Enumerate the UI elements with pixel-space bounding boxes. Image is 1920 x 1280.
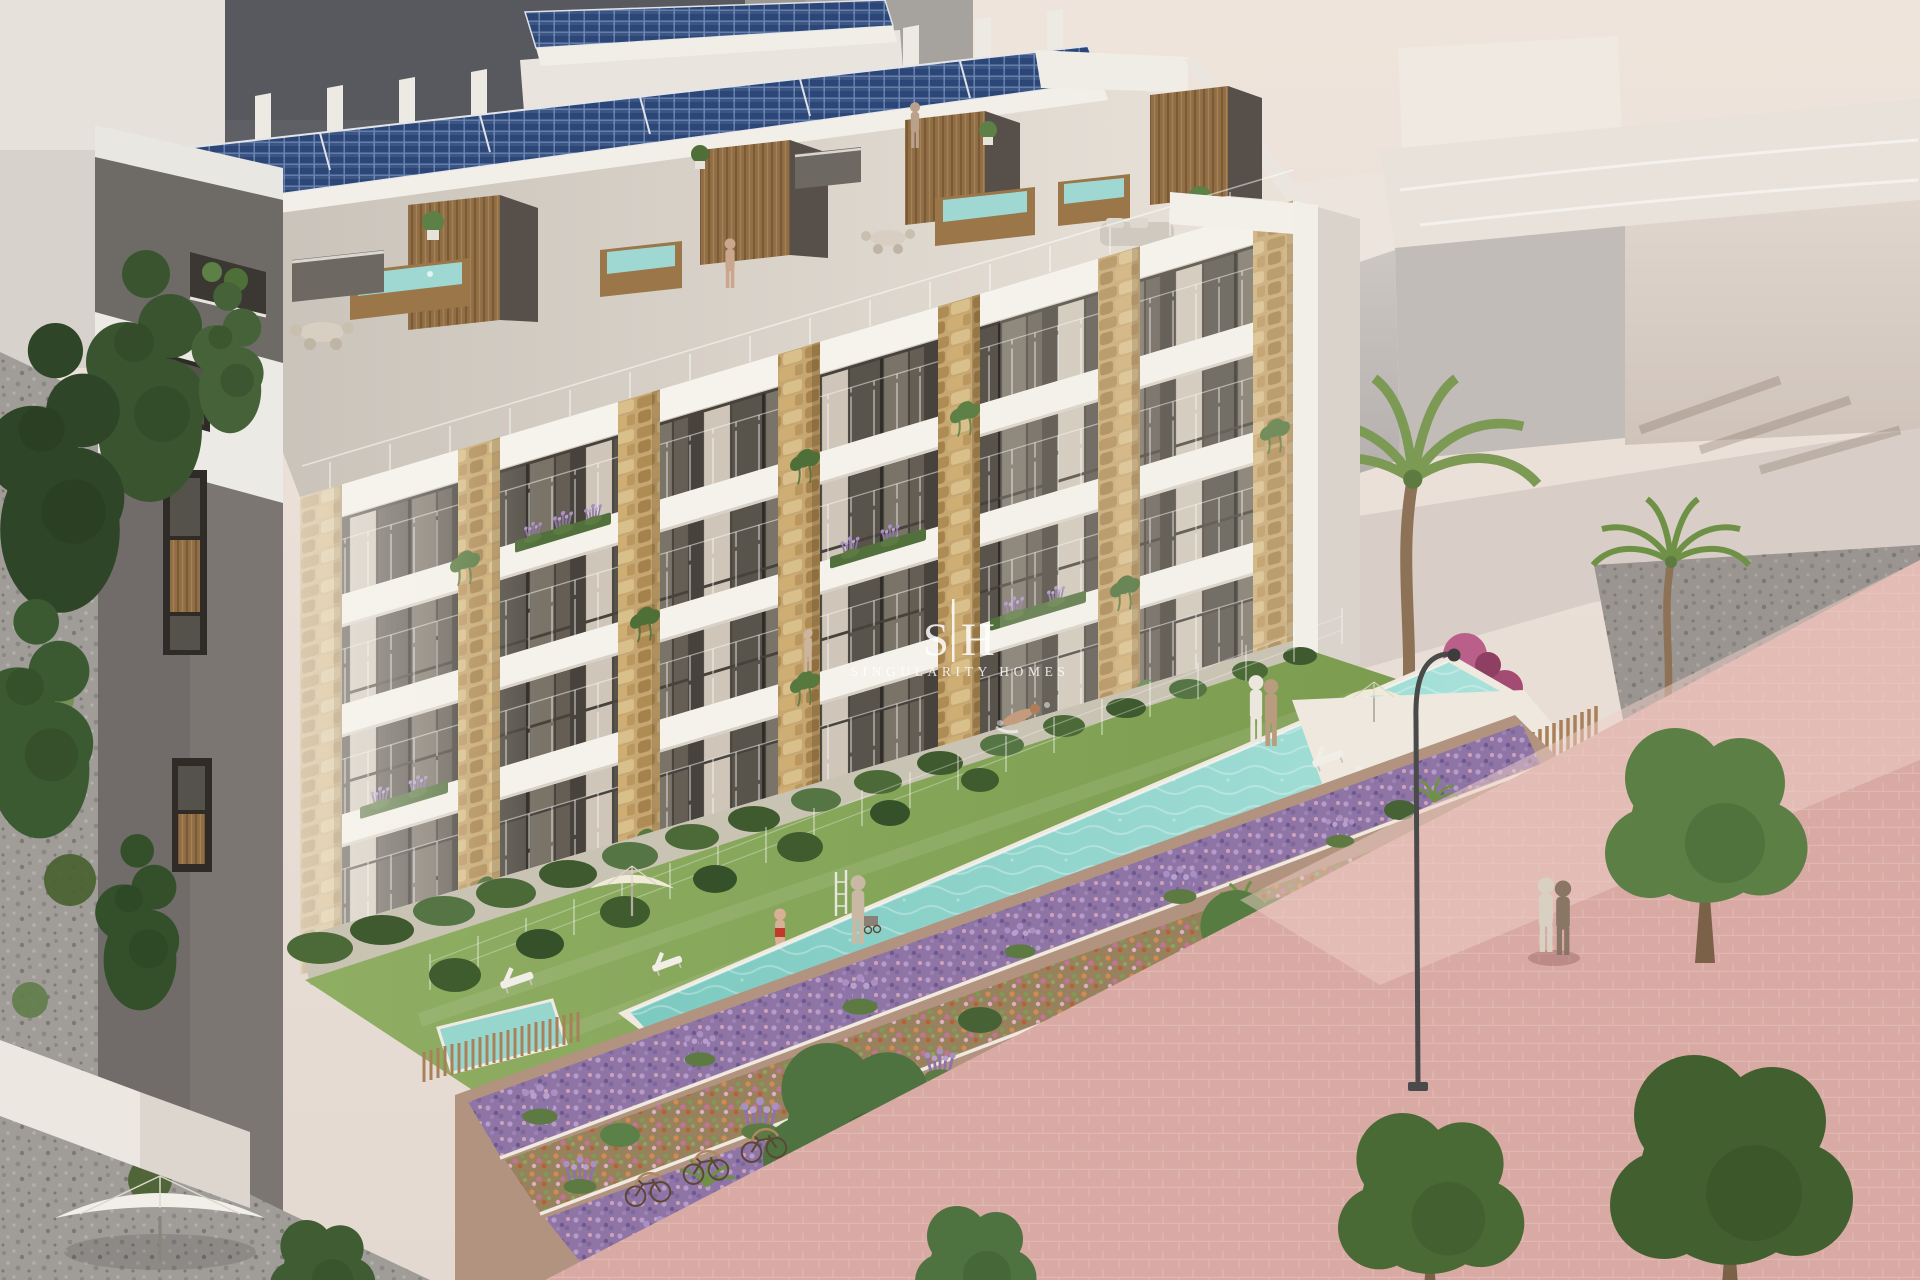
west-slot-window [172, 758, 212, 872]
fence-ivy [693, 865, 737, 893]
wood-wall [700, 140, 790, 265]
swim-shorts [775, 928, 785, 937]
figure-shadow [1528, 950, 1580, 966]
watermark-monogram-right: H [961, 614, 995, 666]
architectural-render: S H SINGULARITY HOMES [0, 0, 1920, 1280]
hole-plant [202, 262, 222, 282]
right-frame-side [1293, 200, 1318, 700]
wood-wall-shadow [500, 195, 538, 322]
watermark-subtitle: SINGULARITY HOMES [850, 664, 1069, 679]
west-slot-window [163, 470, 207, 655]
shrub [12, 982, 48, 1018]
fence-ivy [429, 958, 481, 992]
wood-wall-shadow [1228, 86, 1262, 199]
fence-ivy [516, 929, 564, 959]
fence-ivy [870, 800, 910, 826]
render-canvas: S H SINGULARITY HOMES [0, 0, 1920, 1280]
right-return-face [1318, 207, 1360, 700]
fence-ivy [600, 896, 650, 928]
watermark-monogram-left: S [923, 614, 949, 666]
sand-area [1625, 200, 1920, 445]
fence-ivy [777, 832, 823, 862]
far-left-wall-top [0, 0, 242, 150]
fence-ivy [961, 768, 999, 792]
roof-right-band [1035, 50, 1188, 92]
watermark-divider [952, 599, 955, 662]
west-end-wall [95, 125, 283, 1232]
shrub [44, 854, 96, 906]
outdoor-kitchen [795, 147, 861, 189]
wood-wall [1150, 86, 1228, 205]
jacuzzi [600, 241, 682, 297]
